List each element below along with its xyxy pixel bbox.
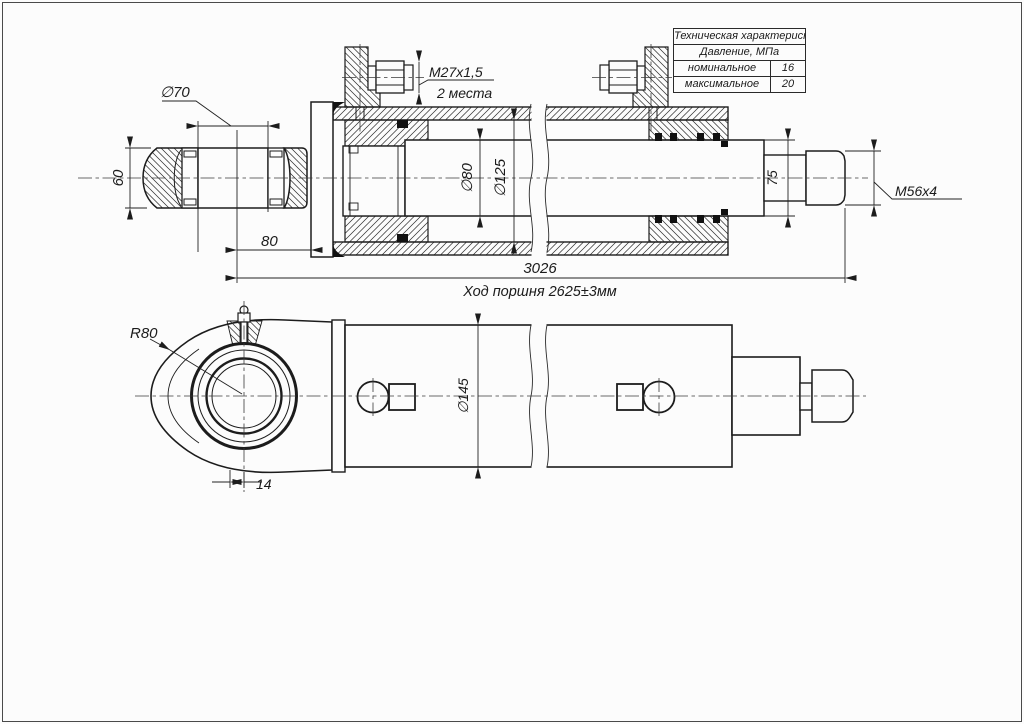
- maximum-pressure-value: 20: [770, 77, 805, 92]
- dim-label-eye-to-flange: 80: [261, 233, 278, 250]
- table-header-row: Техническая характеристика: [674, 29, 805, 44]
- dim-label-rod-thread: M56x4: [895, 183, 937, 199]
- rod-boss: [800, 383, 812, 410]
- table-subheader: Давление, МПа: [700, 46, 779, 58]
- break-lines-top: [529, 101, 548, 259]
- table-row-nominal: номинальное 16: [674, 60, 805, 76]
- maximum-pressure-label: максимальное: [674, 77, 770, 92]
- dim-label-overall-length: 3026: [523, 260, 557, 277]
- dim-label-port-thread: M27x1,5: [429, 64, 483, 80]
- dim-label-rod-end-diameter: 75: [764, 170, 780, 186]
- dim-label-rod-diameter: ∅80: [459, 162, 476, 192]
- piston-body: [343, 146, 405, 216]
- rod-wiper-bottom: [721, 209, 728, 215]
- rod-wiper-top: [721, 141, 728, 147]
- table-header: Техническая характеристика: [674, 30, 805, 42]
- dim-eye-offset: 14: [212, 470, 272, 492]
- dim-label-bore-diameter: ∅125: [492, 158, 509, 197]
- dim-port-thread: M27x1,5 2 места: [419, 62, 494, 101]
- table-subheader-row: Давление, МПа: [674, 44, 805, 60]
- dim-label-eye-offset: 14: [256, 476, 272, 492]
- piston-seal-top: [397, 120, 408, 128]
- drawing-sheet: ∅70 60 80 M27x1,5 2 места ∅80: [0, 0, 1024, 724]
- table-row-maximum: максимальное 20: [674, 76, 805, 92]
- dim-label-port-places: 2 места: [436, 85, 492, 101]
- nominal-pressure-label: номинальное: [674, 61, 770, 76]
- hydraulic-cylinder-drawing: ∅70 60 80 M27x1,5 2 места ∅80: [0, 0, 1024, 724]
- nominal-pressure-value: 16: [770, 61, 805, 76]
- dim-label-eye-width: 60: [110, 169, 127, 186]
- dim-label-eye-bore: ∅70: [160, 84, 190, 101]
- dim-label-eye-radius: R80: [130, 325, 158, 342]
- hex-fitting: [376, 61, 404, 93]
- dim-label-piston-stroke: Ход поршня 2625±3мм: [462, 284, 617, 300]
- dim-label-outer-diameter: ∅145: [455, 378, 471, 414]
- hex-fitting: [609, 61, 637, 93]
- grease-fitting: [227, 306, 262, 346]
- piston-seal-bottom: [397, 234, 408, 242]
- technical-characteristics-table: Техническая характеристика Давление, МПа…: [673, 28, 806, 93]
- bottom-view: [151, 306, 853, 472]
- mounting-flange: [311, 102, 345, 257]
